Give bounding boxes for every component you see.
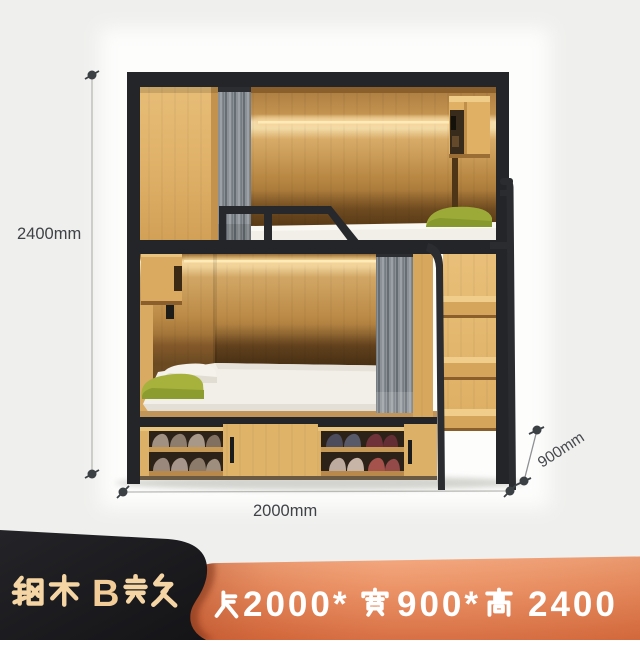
svg-text:2400mm: 2400mm	[17, 225, 81, 243]
svg-text:900*: 900*	[397, 585, 481, 624]
svg-text:2000mm: 2000mm	[253, 502, 317, 520]
svg-text:2400: 2400	[528, 585, 618, 624]
svg-text:2000*: 2000*	[243, 585, 349, 624]
svg-text:B: B	[92, 573, 119, 615]
